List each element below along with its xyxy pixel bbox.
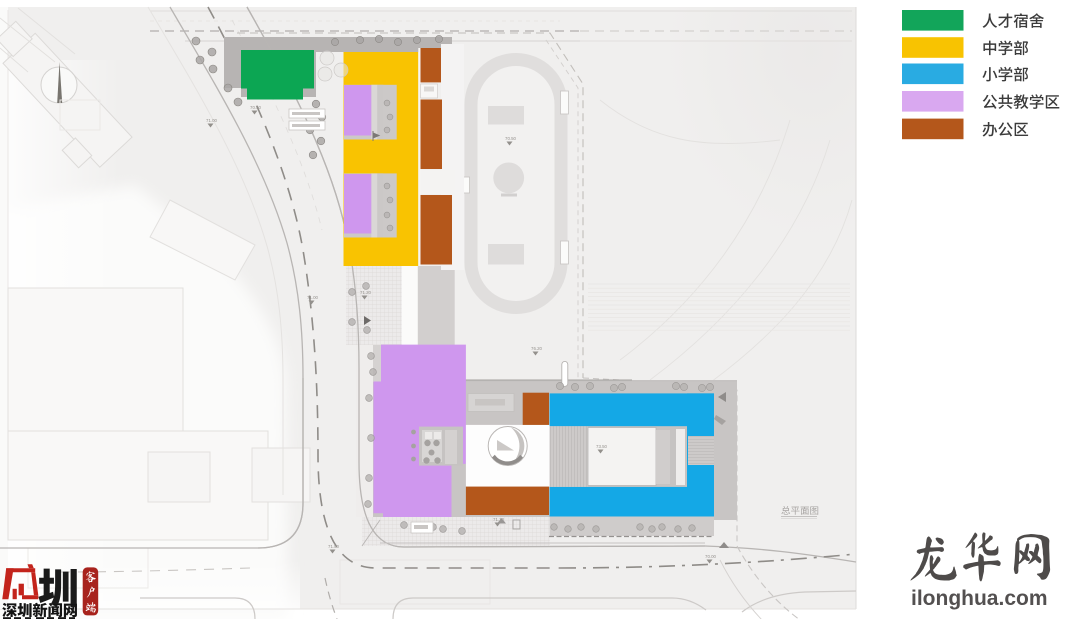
svg-text:71.20: 71.20 — [360, 290, 372, 295]
svg-text:71.50: 71.50 — [328, 544, 340, 549]
svg-text:ilonghua.com: ilonghua.com — [911, 587, 1048, 610]
svg-text:76.20: 76.20 — [531, 346, 543, 351]
svg-text:70.50: 70.50 — [250, 105, 262, 110]
svg-text:71.00: 71.00 — [307, 295, 319, 300]
svg-text:73.50: 73.50 — [596, 444, 608, 449]
svg-text:70.50: 70.50 — [505, 136, 517, 141]
svg-text:70.00: 70.00 — [705, 554, 717, 559]
svg-text:71.00: 71.00 — [206, 118, 218, 123]
